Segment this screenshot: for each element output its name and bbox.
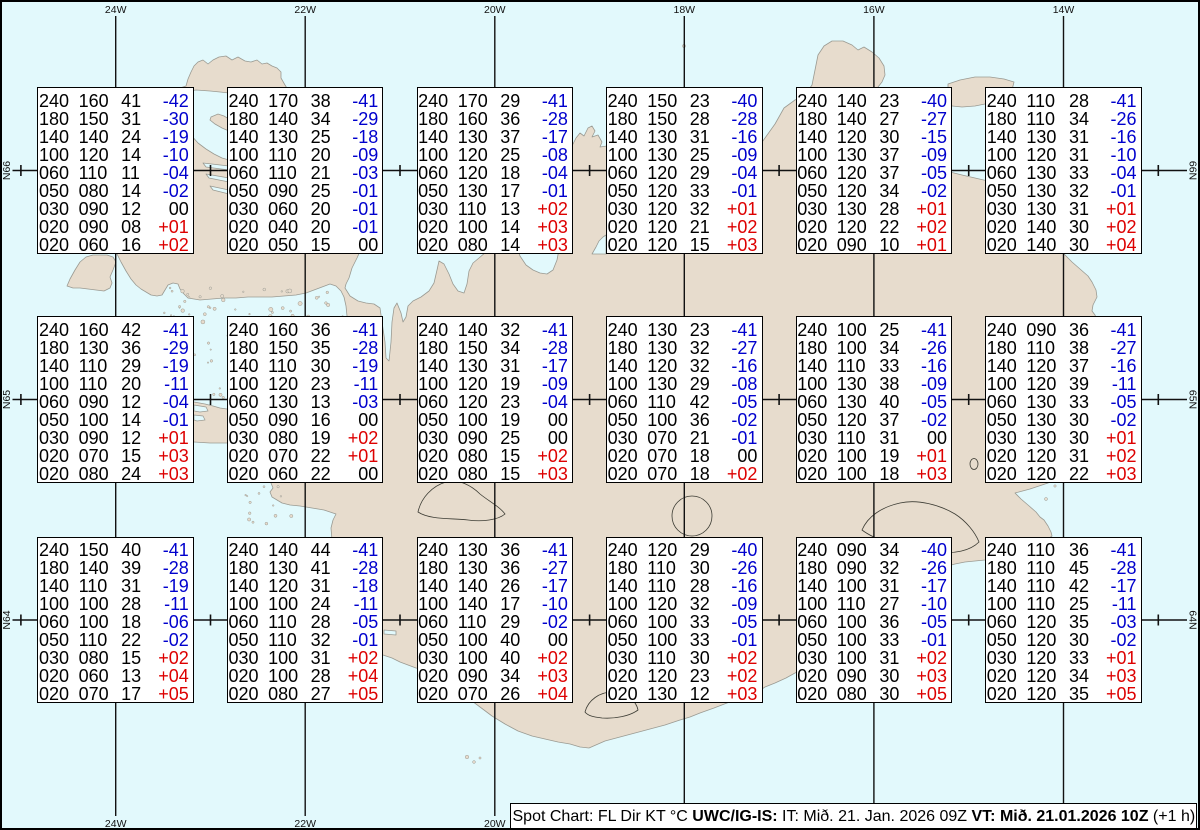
svg-text:N65: N65 [1,390,13,409]
svg-text:66N: 66N [1187,161,1199,180]
svg-text:18W: 18W [674,4,696,16]
svg-text:64N: 64N [1187,610,1199,629]
svg-text:22W: 22W [294,4,316,16]
svg-text:24W: 24W [105,4,127,16]
svg-text:24W: 24W [105,818,127,830]
svg-text:N66: N66 [1,161,13,180]
svg-text:65N: 65N [1187,390,1199,409]
svg-text:22W: 22W [294,818,316,830]
svg-text:N64: N64 [1,610,13,629]
svg-text:14W: 14W [1053,4,1075,16]
svg-text:20W: 20W [484,4,506,16]
svg-text:20W: 20W [484,818,506,830]
svg-text:16W: 16W [863,4,885,16]
